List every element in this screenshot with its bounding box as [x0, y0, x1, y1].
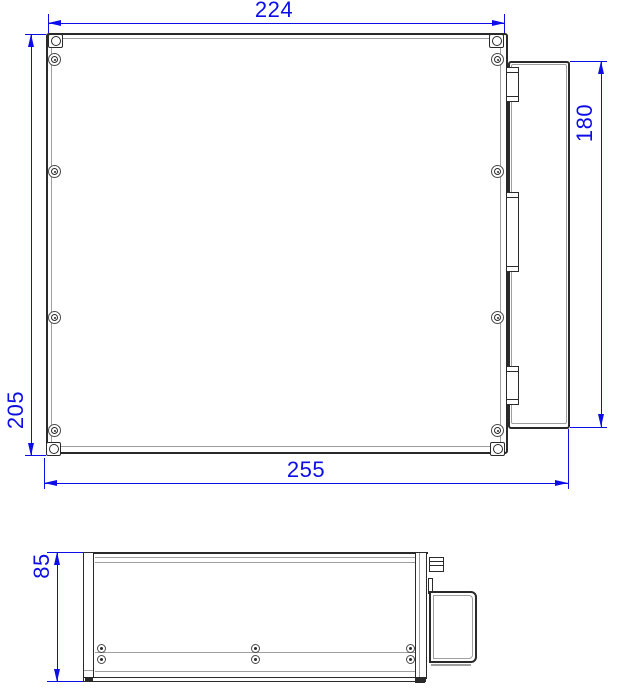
rear-end-cap: [415, 552, 427, 679]
mounting-hole: [49, 444, 59, 454]
screw-head: [97, 644, 106, 653]
dimension-line: [57, 552, 58, 682]
dimension-line: [601, 61, 602, 427]
foot-pad: [85, 678, 93, 682]
dim-label-side-height: 85: [31, 536, 53, 596]
screw-head: [491, 53, 504, 66]
connector-box-inner-line: [433, 595, 473, 659]
rear-connector-block: [506, 192, 519, 272]
dim-label-width-bottom: 255: [276, 459, 336, 481]
arrowhead: [28, 443, 34, 456]
arrowhead: [555, 480, 568, 486]
corner-tab: [490, 442, 505, 456]
screw-head: [406, 644, 415, 653]
extension-line: [570, 427, 607, 428]
side-view-inner-line: [95, 557, 415, 558]
screw-head: [48, 53, 61, 66]
arrowhead: [598, 61, 604, 74]
side-view-bottom-inner-line: [95, 671, 415, 672]
side-view-inner-line: [95, 562, 415, 563]
rear-connector-block: [506, 67, 519, 102]
screw-head: [251, 655, 260, 664]
bottom-rail: [83, 677, 426, 682]
screw-head: [491, 165, 504, 178]
extension-line: [568, 429, 569, 489]
enclosure-body-inner-line: [51, 38, 501, 447]
dimension-line: [44, 483, 568, 484]
dim-label-height-right: 180: [574, 93, 596, 153]
technical-drawing-canvas: 224 205 255 180: [0, 0, 622, 698]
arrowhead: [54, 669, 60, 682]
screw-head: [48, 424, 61, 437]
corner-tab: [46, 442, 61, 456]
screw-head: [48, 311, 61, 324]
screw-head: [406, 655, 415, 664]
screw-head: [491, 424, 504, 437]
arrowhead: [44, 480, 57, 486]
arrowhead: [598, 414, 604, 427]
dimension-line: [48, 23, 505, 24]
rear-connector-box: [429, 591, 477, 663]
extension-line: [47, 681, 83, 682]
screw-head: [97, 655, 106, 664]
rear-small-connector: [429, 557, 444, 572]
screw-head: [48, 165, 61, 178]
arrowhead: [48, 20, 61, 26]
connector-box-shadow-line: [431, 664, 471, 666]
mounting-hole: [492, 36, 502, 46]
mounting-hole: [51, 36, 61, 46]
front-bezel: [83, 552, 94, 679]
side-view-top-edge: [83, 552, 428, 554]
dim-label-height-left: 205: [5, 380, 27, 440]
rear-plate-inner-line: [511, 64, 567, 424]
screw-head: [251, 644, 260, 653]
arrowhead: [28, 34, 34, 47]
bezel-step-line: [84, 670, 93, 671]
rear-connector-block: [506, 366, 519, 405]
arrowhead: [492, 20, 505, 26]
mounting-hole: [493, 444, 503, 454]
dim-label-width-top: 224: [244, 0, 304, 21]
foot-pad: [415, 678, 425, 683]
end-cap-inner-line: [419, 553, 420, 678]
dimension-line: [31, 34, 32, 456]
arrowhead: [54, 552, 60, 565]
screw-head: [491, 311, 504, 324]
corner-tab: [48, 34, 63, 48]
corner-tab: [489, 34, 504, 48]
